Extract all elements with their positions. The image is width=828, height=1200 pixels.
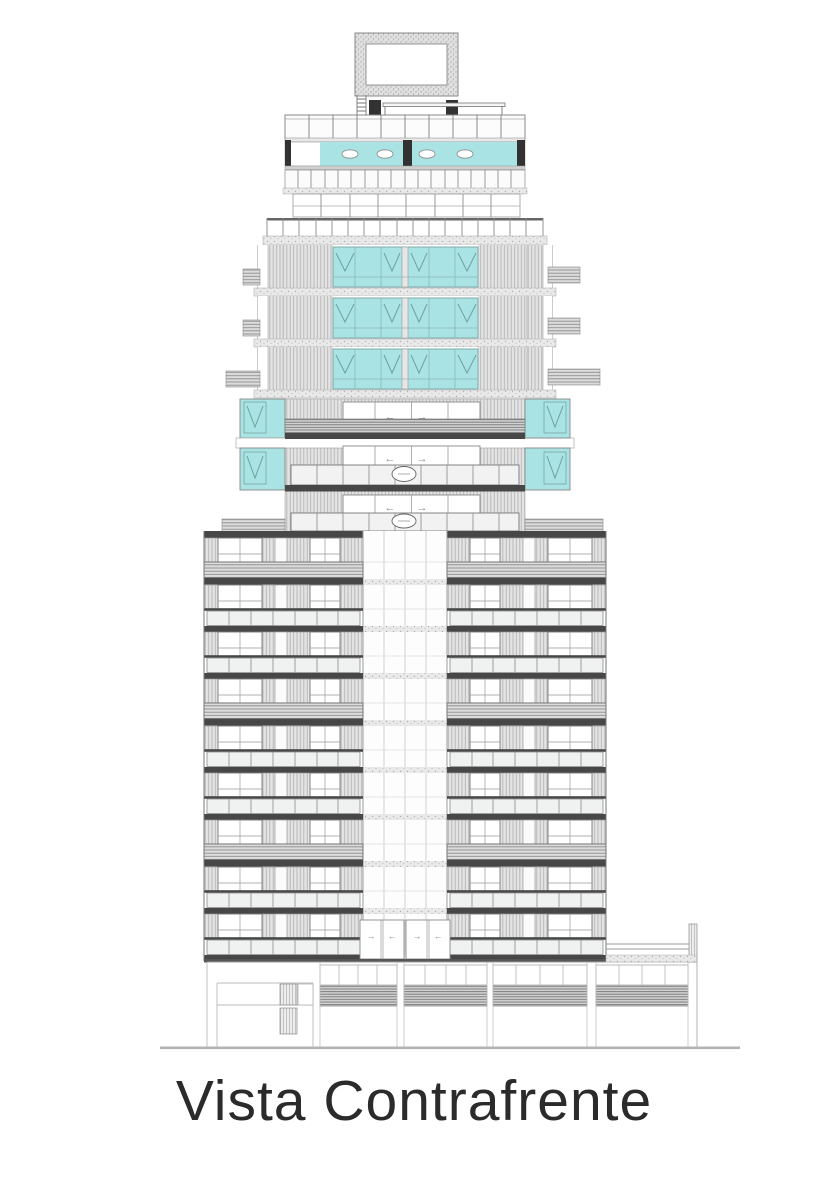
- slide-arrow-right: →: [417, 502, 428, 514]
- pergola-stub-left: [222, 519, 285, 533]
- door-arrow-left: ←: [434, 931, 443, 941]
- terrace-parapet-right: [606, 924, 697, 1047]
- balcony-stub-left: [243, 320, 260, 336]
- door-arrow-right: →: [367, 931, 376, 941]
- upper-floor-row: [243, 245, 580, 296]
- pool-oval: [419, 150, 435, 158]
- upper-balustrade-band: [283, 170, 527, 194]
- door-arrow-right: →: [413, 931, 422, 941]
- slide-arrow-left: ←: [385, 502, 396, 514]
- door-arrow-left: ←: [388, 931, 397, 941]
- terrace-railing: [263, 218, 547, 245]
- podium-louver-section: [404, 962, 487, 1047]
- roof-ladder-icon: [357, 95, 366, 115]
- balcony-stub-right: [548, 267, 580, 283]
- ground-line: [160, 1047, 740, 1050]
- pergola-stub-right: [525, 519, 603, 533]
- penthouse-floor-band: [293, 194, 520, 217]
- balcony-stub-left: [243, 269, 260, 285]
- drawing-title: Vista Contrafrente: [0, 1068, 828, 1134]
- roof-pergola: [369, 100, 505, 115]
- lower-tower: → ← → ←: [204, 531, 606, 963]
- podium-louver-section: [320, 962, 397, 1047]
- pool-oval: [342, 150, 358, 158]
- slide-arrow-right: →: [417, 453, 428, 465]
- elevation-drawing: ← → ← → ← →: [0, 0, 828, 1200]
- pool-level-band: [285, 138, 525, 170]
- balcony-stub-left: [226, 371, 260, 387]
- vent-grille: [280, 984, 297, 1005]
- balcony-stub-right: [548, 369, 600, 385]
- pool-oval: [457, 150, 473, 158]
- vent-grille: [280, 1008, 297, 1034]
- glass-railing: [291, 465, 519, 485]
- setback-section: ← → ← → ← →: [222, 399, 603, 535]
- podium-louver-section: [493, 962, 587, 1047]
- upper-floor-row: [226, 347, 600, 398]
- upper-floor-row: [243, 296, 580, 347]
- center-glazed-strip: [363, 531, 447, 961]
- glass-railing: [291, 513, 519, 531]
- service-room-left: [207, 962, 313, 1047]
- balcony-stub-right: [548, 318, 580, 334]
- roof-machine-room: [355, 33, 458, 96]
- slide-arrow-left: ←: [385, 453, 396, 465]
- podium-louver-section: [596, 962, 688, 1047]
- pool-oval: [377, 150, 393, 158]
- elevation-sheet: ← → ← → ← →: [0, 0, 828, 1200]
- roof-parapet: [285, 115, 525, 140]
